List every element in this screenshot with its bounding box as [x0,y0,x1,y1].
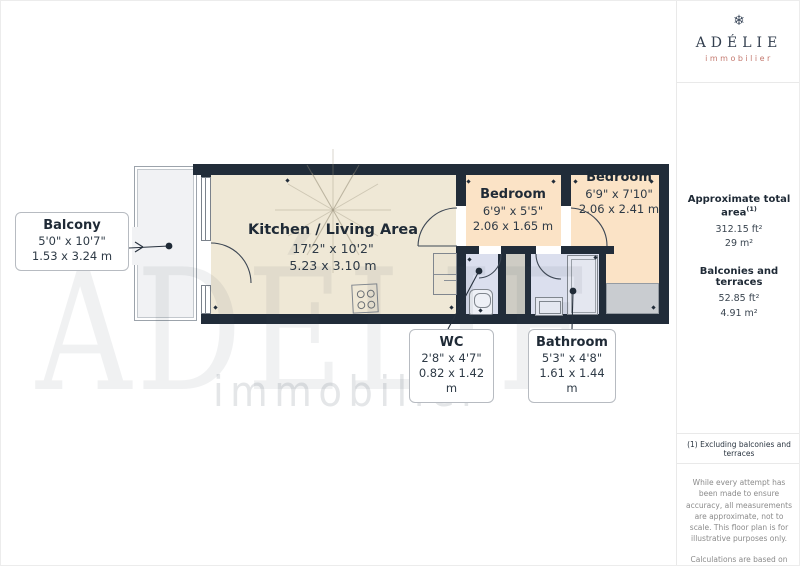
footnote: (1) Excluding balconies and terraces [677,434,800,464]
total-area-label: Approximate total area(1) [677,194,800,218]
balconies-area-group: Balconies and terraces 52.85 ft² 4.91 m² [677,266,800,321]
room-fill-kitchen [211,175,456,314]
snowflake-icon: ❄ [677,14,800,28]
wall-kitchen-right-upper [456,175,466,206]
kitchen-counter [433,253,457,295]
floorplan-page: ADÉLIE immobilier [0,0,800,566]
room-name: Bathroom [535,335,609,350]
disclaimer-text-1: While every attempt has been made to ens… [684,477,794,545]
disclaimer-text-2: Calculations are based on RICS IPMS 3C s… [684,554,794,566]
wall-mid-horizontal-2 [501,246,536,254]
room-name: WC [416,335,487,350]
balcony-area [134,166,197,321]
room-name: Balcony [22,218,122,233]
total-area-m: 29 m² [677,237,800,252]
balconies-label: Balconies and terraces [677,266,800,288]
brand-subtitle: immobilier [677,54,800,63]
room-imperial: 5'0" x 10'7" [22,234,122,249]
wall-bottom [201,314,669,324]
wall-right [659,164,669,324]
stove-icon [351,283,378,313]
balconies-m: 4.91 m² [677,307,800,322]
bathroom-sink [535,297,563,316]
room-fill-bedroom-middle [466,175,561,246]
tag-wc: WC 2'8" x 4'7" 0.82 x 1.42 m [409,329,494,403]
room-metric: 0.82 x 1.42 m [416,366,487,396]
window-kitchen-lower [201,285,211,314]
duct-closet [506,254,525,314]
wall-bathroom-right [599,246,606,314]
area-summary: Approximate total area(1) 312.15 ft² 29 … [677,83,800,434]
tag-balcony: Balcony 5'0" x 10'7" 1.53 x 3.24 m [15,212,129,271]
wall-mid-horizontal-1 [456,246,479,254]
room-imperial: 5'3" x 4'8" [535,351,609,366]
wall-mid-horizontal-3 [561,246,614,254]
brand-name: ADÉLIE [677,35,800,51]
info-panel: ❄ ADÉLIE immobilier Approximate total ar… [676,1,800,566]
footnote-marker: (1) [746,205,756,213]
room-imperial: 2'8" x 4'7" [416,351,487,366]
logo: ❄ ADÉLIE immobilier [677,1,800,83]
wall-top [193,164,669,175]
shaft-area [606,283,659,314]
balconies-ft: 52.85 ft² [677,292,800,307]
window-kitchen-upper [201,177,211,241]
shower-tub [567,255,598,315]
wall-left-top [201,164,211,178]
tag-bathroom: Bathroom 5'3" x 4'8" 1.61 x 1.44 m [528,329,616,403]
room-metric: 1.53 x 3.24 m [22,249,122,264]
wall-kitchen-right-lower [456,246,466,314]
balcony-opening [132,227,138,265]
wall-bedrooms-divider [561,175,571,206]
wall-duct-bathroom [525,254,531,314]
wall-wc-duct [498,254,506,314]
room-metric: 1.61 x 1.44 m [535,366,609,396]
total-area-group: Approximate total area(1) 312.15 ft² 29 … [677,194,800,252]
total-area-ft: 312.15 ft² [677,223,800,238]
disclaimer: While every attempt has been made to ens… [677,464,800,566]
